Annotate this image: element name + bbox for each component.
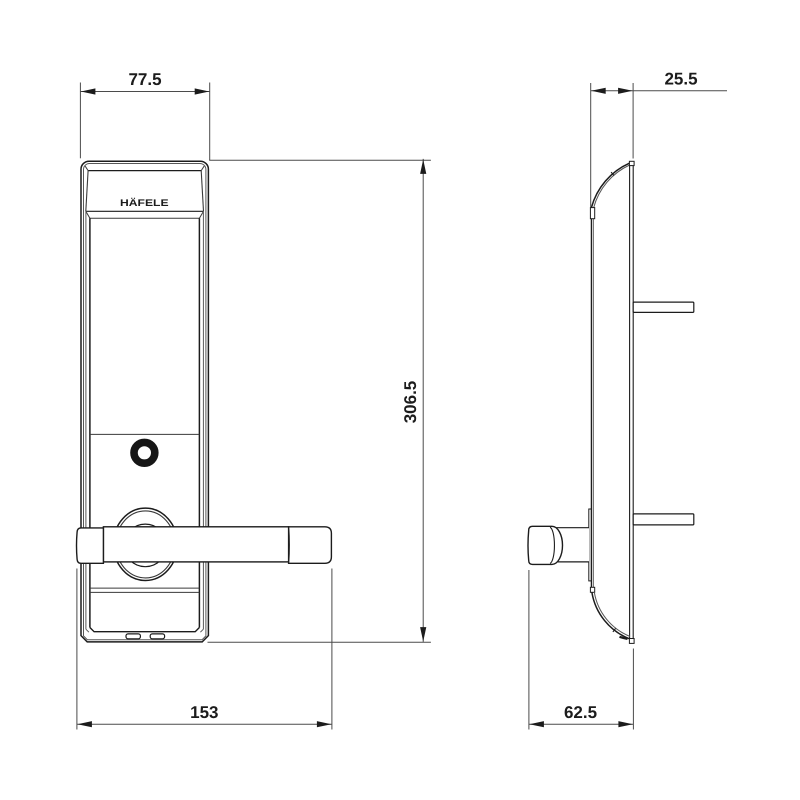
svg-text:62.5: 62.5 <box>564 703 597 722</box>
svg-text:77.5: 77.5 <box>128 70 161 89</box>
svg-text:153: 153 <box>190 703 218 722</box>
svg-text:306.5: 306.5 <box>401 381 420 424</box>
svg-text:25.5: 25.5 <box>664 69 697 88</box>
svg-text:HÄFELE: HÄFELE <box>120 197 169 209</box>
